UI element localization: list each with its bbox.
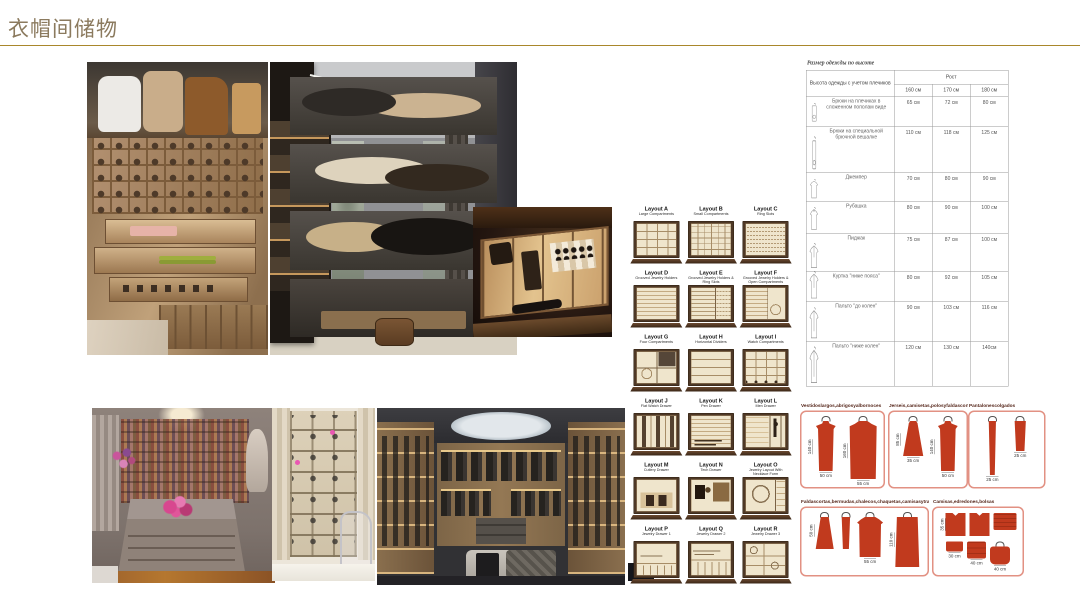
height-label: 140 cm [929, 440, 935, 455]
size-table-body: Брюки на плечиках в сложенном пополам ви… [806, 96, 1008, 386]
garment-label: Пальто "ниже колен" [821, 344, 893, 350]
layout-cell-i: Layout IWatch Compartments [738, 334, 793, 398]
drawer-illustration [743, 541, 789, 578]
garment-box-title: Pantalonescolgados [969, 403, 1046, 409]
layout-grid: Layout ALarge CompartmentsLayout BSmall … [629, 206, 793, 590]
drawer-illustration [743, 477, 789, 514]
hat-shelf [290, 77, 497, 136]
height-label: 85 cm [895, 433, 901, 445]
height-label: 110 cm [888, 532, 894, 546]
drawer-illustration [688, 477, 734, 514]
height-value: 118 см [932, 126, 970, 172]
size-table-row: Пальто "до колен"90 см103 см116 см [806, 301, 1008, 341]
drawer-base [685, 451, 737, 456]
layout-cell-p: Layout PJewelry Drawer 1 [629, 526, 684, 590]
photo-walkin-skylight [377, 408, 625, 585]
garment-shape-dress [935, 421, 961, 471]
page-title: 衣帽间储物 [8, 13, 118, 43]
size-table-panel: Размер одежды по высоте Высота одежды с … [806, 60, 1016, 387]
height-value: 92 см [932, 271, 970, 301]
garment-item: 50 cm [809, 512, 835, 549]
width-label: 25 cm [986, 476, 998, 482]
drawer-illustration [743, 221, 789, 258]
height-value: 80 см [894, 201, 932, 233]
bag-shape [232, 83, 261, 133]
garment-label: Брюки на специальной брючной вешалке [821, 129, 893, 141]
size-table-row: Брюки на плечиках в сложенном пополам ви… [806, 96, 1008, 126]
garment-label: Пальто "до колен" [821, 304, 893, 310]
garment-box-2: Pantalonescolgados25 cm25 cm [968, 403, 1046, 489]
layout-subtitle: Horizontal Dividers [695, 340, 726, 349]
drawer-base [685, 579, 737, 584]
bag-shape [185, 77, 228, 135]
drawer-base [630, 387, 682, 392]
layout-subtitle: Grooved Jewelry Holders & Ring Slots [686, 276, 736, 285]
drawer-sunglasses [109, 277, 249, 302]
layout-subtitle: Men Drawer [755, 404, 775, 413]
garment-shape-jacket [857, 517, 883, 557]
garment-item: 40 cm [990, 542, 1010, 572]
garment-item: 55 cm [857, 512, 883, 564]
garment-shape-duvet [967, 542, 986, 559]
rug [92, 566, 118, 584]
garment-box-frame: 50 cm55 cm110 cm [800, 507, 929, 577]
height-label: 140 cm [807, 440, 813, 455]
layout-cell-m: Layout MCutlery Drawer [629, 462, 684, 526]
photo-shoebox-cabinet [272, 408, 375, 581]
fur-rug [272, 564, 375, 581]
height-value: 125 см [970, 126, 1008, 172]
header-height-col: 170 см [932, 84, 970, 96]
layout-subtitle: Large Compartments [639, 212, 674, 221]
garment-box-frame: 35 cm30 cm40 cm40 cm [932, 507, 1024, 577]
hanger-icon [820, 512, 829, 518]
size-table-title: Размер одежды по высоте [807, 60, 1016, 66]
drawer-illustration [633, 541, 679, 578]
layout-subtitle: Small Compartments [693, 212, 728, 221]
garment-shape-blanket [994, 513, 1017, 530]
size-table-row: Брюки на специальной брючной вешалке110 … [806, 126, 1008, 172]
height-label: 160 cm [842, 444, 848, 459]
drawer-illustration [688, 221, 734, 258]
header-height-col: 160 см [894, 84, 932, 96]
drawer-base [740, 323, 792, 328]
drawer-illustration [743, 349, 789, 386]
layout-subtitle: Jewelry Drawer 3 [751, 532, 780, 541]
dark-case [476, 553, 498, 578]
layout-subtitle: Jewelry Drawer 1 [642, 532, 671, 541]
layout-cell-f: Layout FGrooved Jewelry Holders & Open C… [738, 270, 793, 334]
garment-box-title: Faldascortas,bermudas,chalecos,chaquetas… [801, 499, 929, 505]
height-value: 140см [970, 341, 1008, 386]
layout-cell-n: Layout NTech Drawer [684, 462, 739, 526]
layout-cell-c: Layout CRing Slots [738, 206, 793, 270]
height-value: 72 см [932, 96, 970, 126]
size-table-head: Высота одежды с учетом плечиковРост160 с… [806, 70, 1008, 96]
garment-item: 30 cm [946, 542, 963, 559]
hanging-clothes [382, 436, 429, 546]
size-table-row: Пиджак75 см87 см100 см [806, 233, 1008, 271]
layout-cell-r: Layout RJewelry Drawer 3 [738, 526, 793, 590]
wood-floor [92, 571, 275, 583]
drawer-illustration [688, 413, 734, 450]
header-clothes-height: Высота одежды с учетом плечиков [806, 70, 894, 96]
title-underline [0, 45, 1080, 46]
garment-shape-coat [848, 421, 878, 479]
lower-shoe-cubbies [159, 305, 268, 349]
hanger-icon [988, 416, 997, 422]
height-value: 130 см [932, 341, 970, 386]
width-label: 35 cm [907, 457, 919, 463]
garment-box-frame: 140 cm50 cm160 cm55 cm [800, 411, 885, 489]
photo-watch-drawer [473, 207, 612, 337]
drawer-necklaces [94, 247, 255, 274]
garment-item: 40 cm [967, 542, 986, 566]
bag-shape [98, 76, 141, 132]
garment-label: Рубашка [821, 204, 893, 210]
garment-item: 160 cm55 cm [842, 416, 878, 486]
layout-subtitle: Cutlery Drawer [644, 468, 669, 477]
trousers-folded-icon [809, 103, 820, 125]
garment-item [840, 512, 852, 549]
garment-label: Куртка "ниже пояса" [821, 274, 893, 280]
layout-subtitle: Jewelry Drawer 2 [697, 532, 726, 541]
drawer-illustration [633, 477, 679, 514]
garment-item [970, 513, 990, 536]
drawer-base [630, 451, 682, 456]
drawer-illustration [633, 349, 679, 386]
garment-shape-bag [990, 547, 1010, 565]
drawer-base [630, 323, 682, 328]
header-rost: Рост [894, 70, 1008, 84]
shoe-cubbies [92, 138, 262, 214]
drawer-scarves [105, 219, 255, 244]
layout-cell-h: Layout HHorizontal Dividers [684, 334, 739, 398]
photo-shoe-shelves [87, 62, 268, 355]
garment-box-title: Jerseis,camisetas,polosyfaldascortas [889, 403, 968, 409]
drawer-base [685, 515, 737, 520]
drawer-base [740, 515, 792, 520]
garment-box-3: Faldascortas,bermudas,chalecos,chaquetas… [800, 499, 929, 577]
garment-box-frame: 85 cm35 cm140 cm50 cm [888, 411, 968, 489]
clothes-rail [441, 489, 491, 516]
width-label: 40 cm [994, 566, 1006, 572]
coat-long-icon [809, 346, 820, 385]
drawer-illustration [743, 413, 789, 450]
garment-shape-folded-small [946, 542, 963, 552]
garment-item: 140 cm50 cm [807, 416, 839, 478]
sunglasses-shape [488, 242, 513, 266]
garment-box-title: Camisas,edredones,bolsas [933, 499, 1024, 505]
height-value: 120 см [894, 341, 932, 386]
height-label: 50 cm [809, 524, 815, 536]
center-drawers [476, 518, 526, 545]
layout-subtitle: Jewelry Layout With Necklace Form [741, 468, 791, 477]
drawer-illustration [688, 349, 734, 386]
layout-cell-j: Layout JFlat Watch Drawer [629, 398, 684, 462]
layout-cell-e: Layout EGrooved Jewelry Holders & Ring S… [684, 270, 739, 334]
garment-shape-folded-shirt2 [970, 513, 990, 536]
height-label: 35 cm [940, 518, 946, 530]
drawer-base [740, 387, 792, 392]
garment-box-title: Vestidoslargos,abrigosyalbornoces [801, 403, 885, 409]
hanger-icon [909, 416, 918, 422]
shirt-icon [809, 207, 820, 232]
garment-shape-dress [813, 421, 839, 471]
layout-subtitle: Tech Drawer [700, 468, 721, 477]
garment-shape-top [901, 421, 925, 456]
garment-item: 25 cm [1013, 416, 1027, 458]
hanger-icon [866, 512, 875, 518]
pink-roses [158, 494, 198, 520]
drawer-illustration [688, 541, 734, 578]
accessory-drawers [87, 217, 268, 305]
width-label: 55 cm [857, 480, 869, 486]
width-label: 30 cm [948, 553, 960, 559]
drawer-base [740, 451, 792, 456]
drawer-illustration [633, 285, 679, 322]
garment-box-0: Vestidoslargos,abrigosyalbornoces140 cm5… [800, 403, 885, 489]
garment-label: Джемпер [821, 175, 893, 181]
floor [377, 576, 625, 585]
drawer-base [685, 387, 737, 392]
garment-shape-trouser-half [1013, 421, 1027, 451]
hanging-clothes [573, 436, 620, 546]
layout-subtitle: Four Compartments [640, 340, 673, 349]
width-label: 40 cm [970, 560, 982, 566]
height-value: 90 см [894, 301, 932, 341]
layout-cell-a: Layout ALarge Compartments [629, 206, 684, 270]
garment-shape-trouser-folded [840, 517, 852, 549]
slide: 衣帽间储物 [0, 0, 1080, 607]
layout-cell-o: Layout OJewelry Layout With Necklace For… [738, 462, 793, 526]
floor [87, 320, 168, 355]
cabinet-top [473, 207, 612, 228]
garment-shape-skirt [815, 517, 835, 549]
garment-shape-suit [894, 517, 920, 567]
drawer-base [685, 259, 737, 264]
height-value: 75 см [894, 233, 932, 271]
garment-item: 25 cm [986, 416, 998, 482]
garment-item [994, 513, 1017, 530]
garment-label: Пиджак [821, 236, 893, 242]
drawer-illustration [633, 413, 679, 450]
garment-box-1: Jerseis,camisetas,polosyfaldascortas85 c… [888, 403, 968, 489]
layout-cell-b: Layout BSmall Compartments [684, 206, 739, 270]
layout-cell-k: Layout KPen Drawer [684, 398, 739, 462]
height-value: 80 см [932, 172, 970, 201]
height-value: 65 см [894, 96, 932, 126]
layout-cell-g: Layout GFour Compartments [629, 334, 684, 398]
garment-item: 110 cm [888, 512, 920, 567]
garment-box-4: Camisas,edredones,bolsas35 cm30 cm40 cm4… [932, 499, 1024, 577]
height-value: 110 см [894, 126, 932, 172]
height-value: 100 см [970, 233, 1008, 271]
size-table: Высота одежды с учетом плечиковРост160 с… [806, 70, 1009, 387]
layout-subtitle: Pen Drawer [701, 404, 721, 413]
width-label: 50 cm [942, 472, 954, 478]
drawer-base [740, 259, 792, 264]
height-value: 100 см [970, 201, 1008, 233]
drawer-base [630, 259, 682, 264]
drawer-illustration [688, 285, 734, 322]
height-value: 87 см [932, 233, 970, 271]
drawer-base [685, 323, 737, 328]
layout-cell-d: Layout DGrooved Jewelry Holders [629, 270, 684, 334]
width-label: 55 cm [864, 558, 876, 564]
handbag-shelf [87, 62, 268, 138]
coat-icon [809, 307, 820, 340]
height-value: 80 см [894, 271, 932, 301]
hat-shelf [290, 144, 497, 203]
width-label: 50 cm [820, 472, 832, 478]
height-value: 116 см [970, 301, 1008, 341]
garment-shape-folded-shirt [946, 513, 966, 536]
size-table-row: Пальто "ниже колен"120 см130 см140см [806, 341, 1008, 386]
width-label: 25 cm [1014, 452, 1026, 458]
hanger-icon [903, 512, 912, 518]
layout-subtitle: Watch Compartments [748, 340, 784, 349]
layout-subtitle: Flat Watch Drawer [641, 404, 672, 413]
height-value: 80 см [970, 96, 1008, 126]
drawer-base [740, 579, 792, 584]
pink-tag [295, 460, 300, 465]
layout-cell-l: Layout LMen Drawer [738, 398, 793, 462]
size-table-row: Куртка "ниже пояса"80 см92 см105 см [806, 271, 1008, 301]
drawer-illustration [633, 221, 679, 258]
clothes-rail [441, 450, 560, 480]
suitcase [375, 318, 414, 346]
jacket-icon [809, 243, 820, 270]
height-value: 90 см [970, 172, 1008, 201]
height-value: 105 см [970, 271, 1008, 301]
garment-item: 35 cm [940, 513, 966, 536]
drawer-base [630, 579, 682, 584]
mannequin [246, 429, 268, 492]
hanger-icon [821, 416, 830, 422]
curtain [272, 408, 290, 560]
clothes-rail [511, 489, 561, 516]
height-value: 103 см [932, 301, 970, 341]
height-value: 70 см [894, 172, 932, 201]
garment-box-frame: 25 cm25 cm [968, 411, 1046, 489]
hanger-icon [1016, 416, 1025, 422]
hanger-icon [841, 512, 850, 518]
bag-shape [143, 71, 183, 132]
hanger-icon [943, 416, 952, 422]
layout-subtitle: Grooved Jewelry Holders & Open Compartme… [741, 276, 791, 285]
size-table-row: Рубашка80 см90 см100 см [806, 201, 1008, 233]
garment-shape-trouser-long [986, 421, 998, 475]
jacket-long-icon [809, 271, 820, 300]
hat-shelf [290, 211, 497, 270]
size-table-row: Джемпер70 см80 см90 см [806, 172, 1008, 201]
layout-subtitle: Ring Slots [757, 212, 774, 221]
drawer-base [630, 515, 682, 520]
header-height-col: 180 см [970, 84, 1008, 96]
shoe-wall [121, 419, 249, 503]
garment-item: 140 cm50 cm [929, 416, 961, 478]
garment-item: 85 cm35 cm [895, 416, 925, 463]
height-value: 90 см [932, 201, 970, 233]
layout-subtitle: Grooved Jewelry Holders [635, 276, 677, 285]
trousers-long-icon [809, 136, 820, 171]
round-skylight [451, 412, 550, 440]
photo-island-closet [92, 408, 275, 583]
layout-cell-q: Layout QJewelry Drawer 2 [684, 526, 739, 590]
drawer-illustration [743, 285, 789, 322]
flower-vase [107, 443, 140, 475]
sweater-icon [809, 179, 820, 200]
garment-label: Брюки на плечиках в сложенном пополам ви… [821, 99, 893, 111]
hanger-icon [859, 416, 868, 422]
